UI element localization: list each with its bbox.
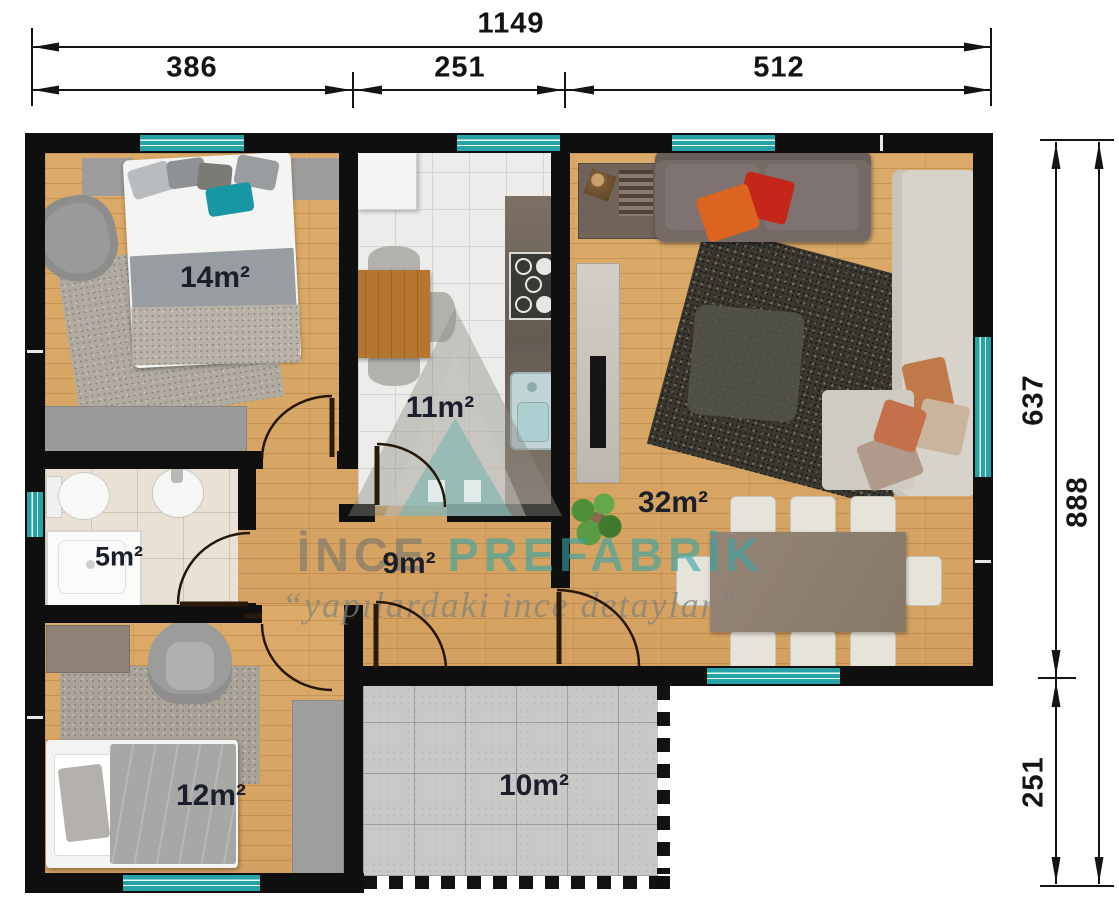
dimension-arrowheads bbox=[33, 43, 1104, 884]
floor-plan-canvas: İNCE PREFABRİK “yapılardaki ince detayla… bbox=[0, 0, 1119, 914]
dimension-lines bbox=[32, 28, 1114, 886]
door-arc-bedroom-large bbox=[262, 396, 332, 459]
door-arc-terrace bbox=[376, 602, 446, 670]
door-arc-kitchen bbox=[377, 444, 445, 507]
dimension-and-door-overlay bbox=[0, 0, 1119, 914]
door-arc-bathroom bbox=[178, 533, 250, 604]
door-arc-bedroom-small bbox=[262, 624, 332, 690]
door-swing-arcs bbox=[178, 396, 639, 690]
door-arc-living-room bbox=[557, 590, 639, 666]
